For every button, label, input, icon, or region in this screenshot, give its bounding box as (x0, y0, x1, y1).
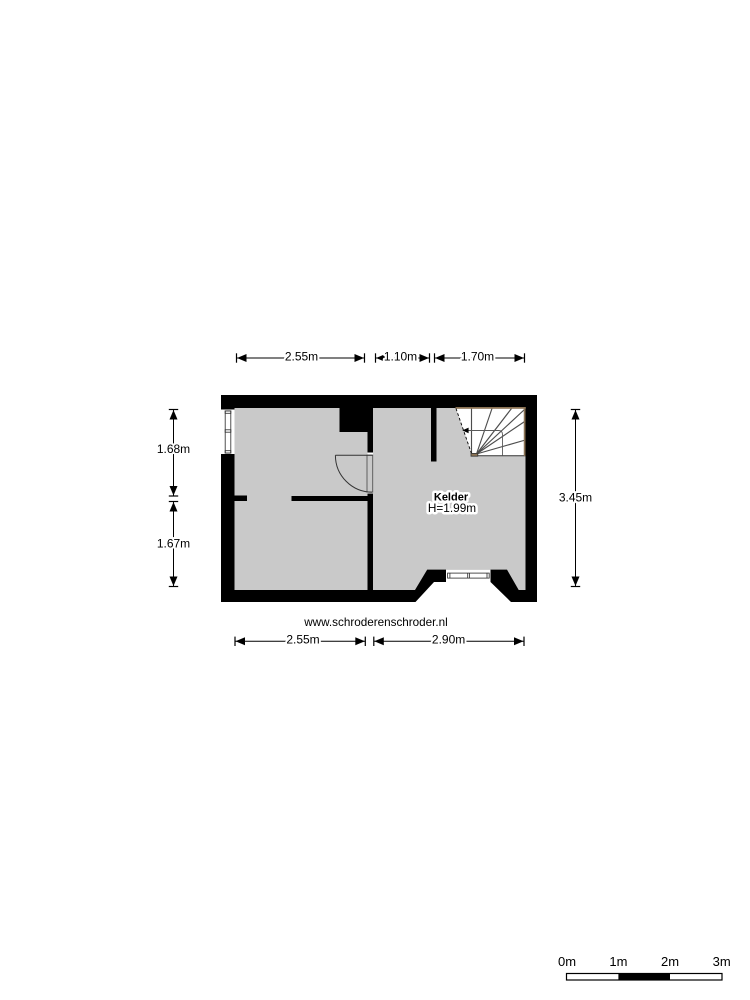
svg-text:1.10m: 1.10m (384, 349, 417, 363)
svg-text:1.68m: 1.68m (157, 442, 190, 456)
svg-text:2.90m: 2.90m (432, 633, 465, 647)
svg-text:H=1.99m: H=1.99m (428, 501, 476, 515)
svg-text:2.55m: 2.55m (285, 349, 318, 363)
svg-text:www.schroderenschroder.nl: www.schroderenschroder.nl (303, 616, 448, 629)
svg-text:0m: 0m (558, 954, 576, 969)
svg-text:2m: 2m (661, 954, 679, 969)
svg-text:1.67m: 1.67m (157, 536, 190, 550)
svg-text:2.55m: 2.55m (286, 633, 319, 647)
svg-text:3.45m: 3.45m (559, 490, 592, 504)
svg-text:1m: 1m (609, 954, 627, 969)
svg-text:1.70m: 1.70m (461, 349, 494, 363)
svg-text:3m: 3m (713, 954, 731, 969)
